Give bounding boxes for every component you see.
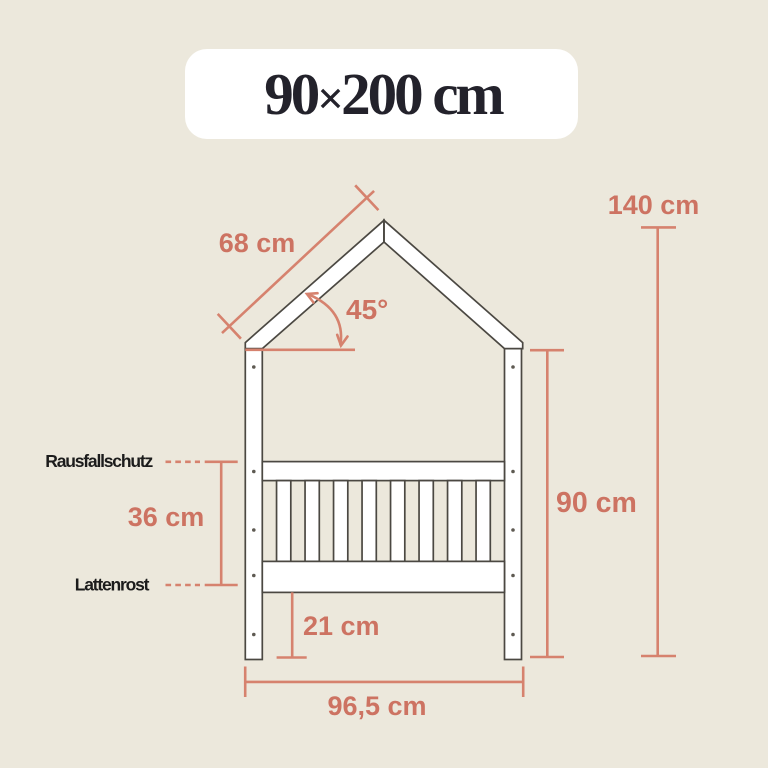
svg-text:Rausfallschutz: Rausfallschutz — [45, 451, 153, 471]
svg-text:90×200 cm: 90×200 cm — [264, 61, 504, 127]
svg-text:68 cm: 68 cm — [219, 228, 296, 258]
svg-text:45°: 45° — [346, 294, 388, 325]
svg-text:36 cm: 36 cm — [128, 502, 205, 532]
svg-text:90 cm: 90 cm — [556, 487, 637, 519]
svg-text:21 cm: 21 cm — [303, 611, 380, 641]
svg-text:140 cm: 140 cm — [608, 190, 700, 220]
svg-text:96,5 cm: 96,5 cm — [327, 691, 426, 721]
svg-text:Lattenrost: Lattenrost — [75, 575, 150, 595]
